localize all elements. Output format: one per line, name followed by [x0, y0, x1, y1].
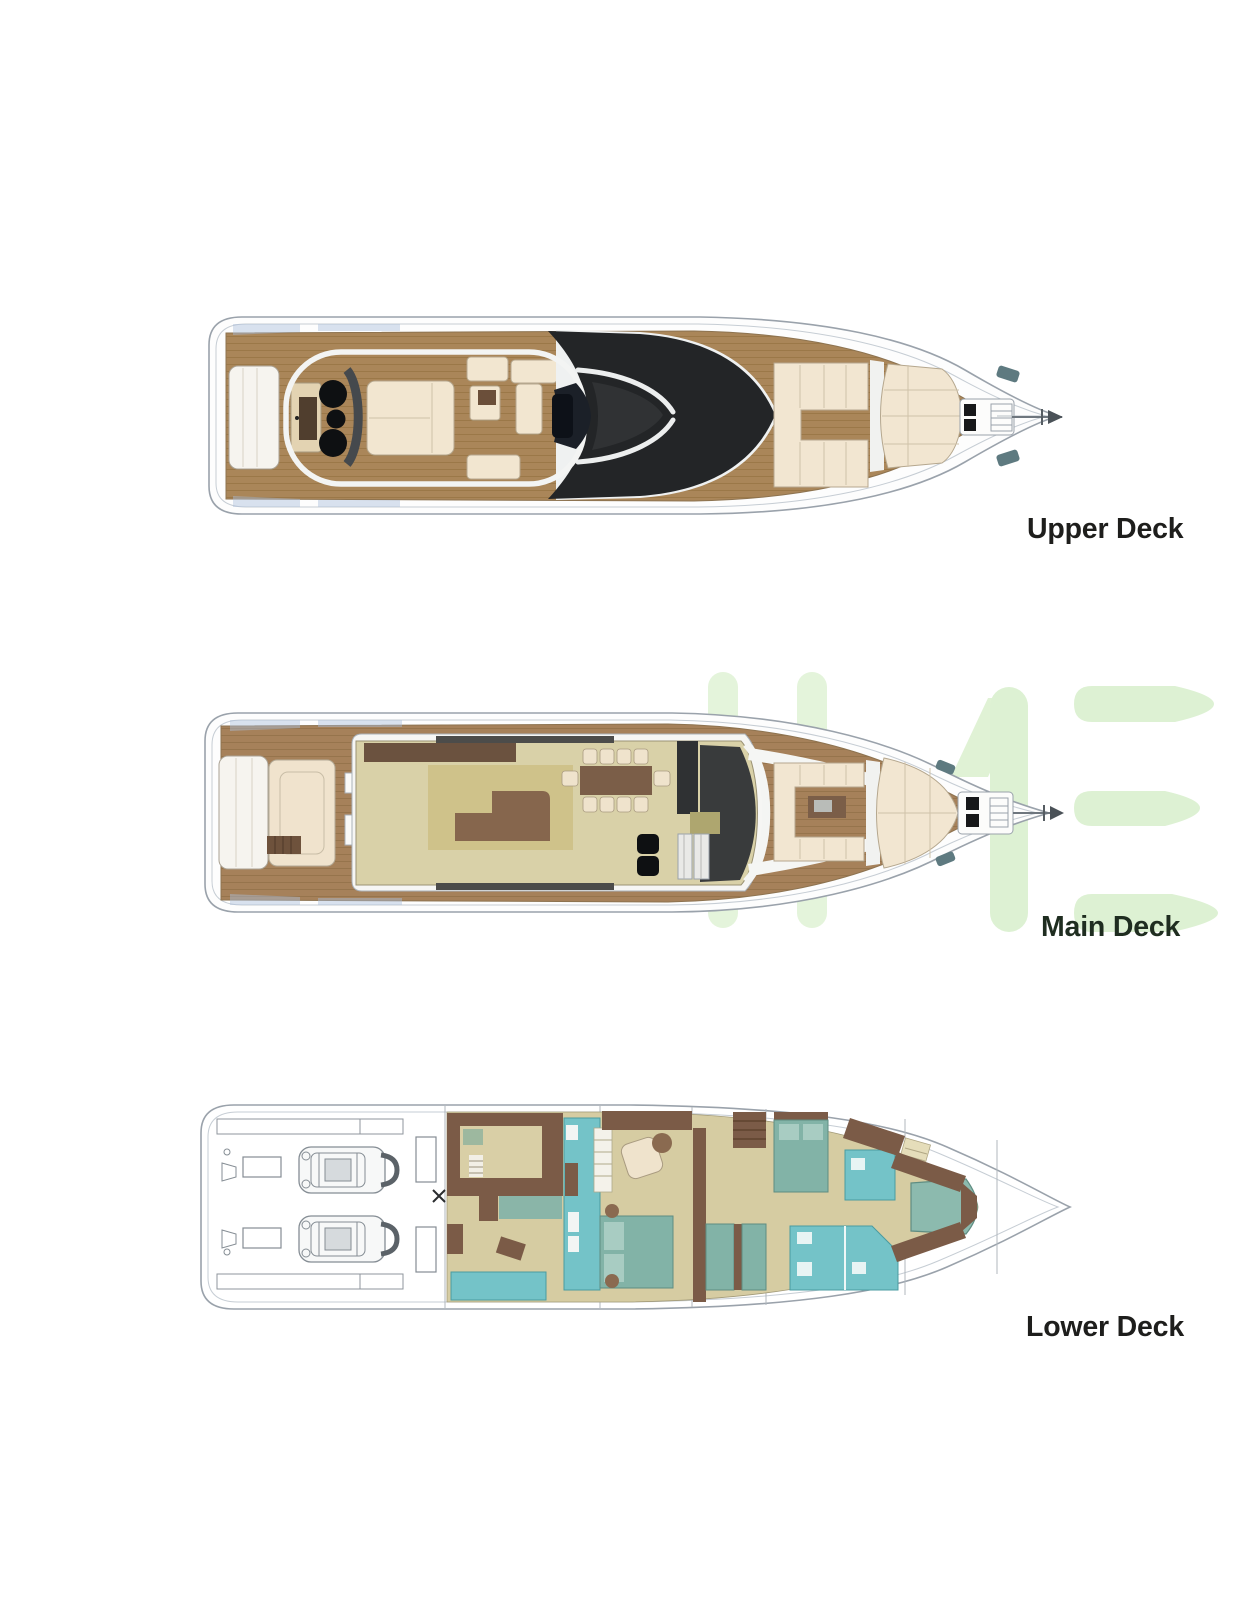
svg-text:Lower Deck: Lower Deck — [1026, 1311, 1184, 1343]
svg-text:Upper Deck: Upper Deck — [1027, 513, 1184, 545]
svg-text:Main Deck: Main Deck — [1041, 911, 1181, 943]
